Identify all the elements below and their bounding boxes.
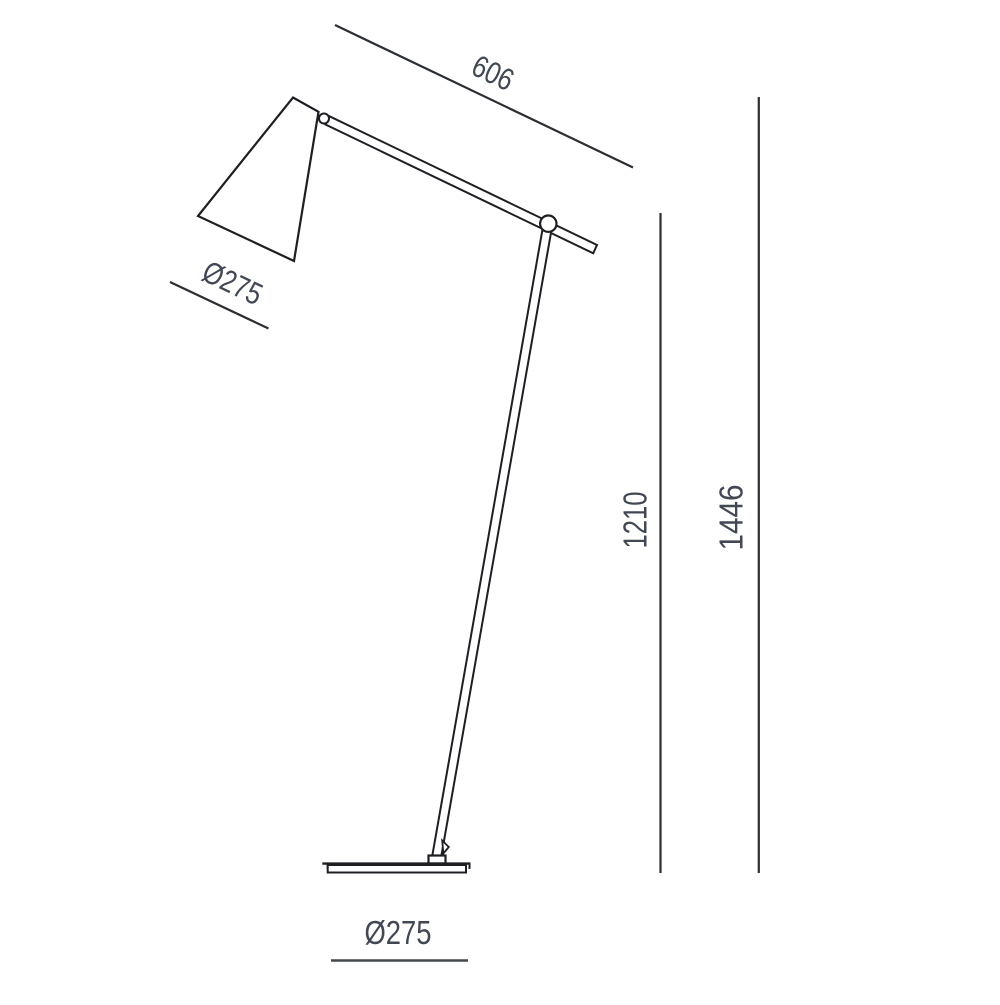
svg-text:Ø275: Ø275 xyxy=(365,914,432,951)
svg-text:1210: 1210 xyxy=(617,492,654,549)
svg-text:1446: 1446 xyxy=(713,485,750,551)
